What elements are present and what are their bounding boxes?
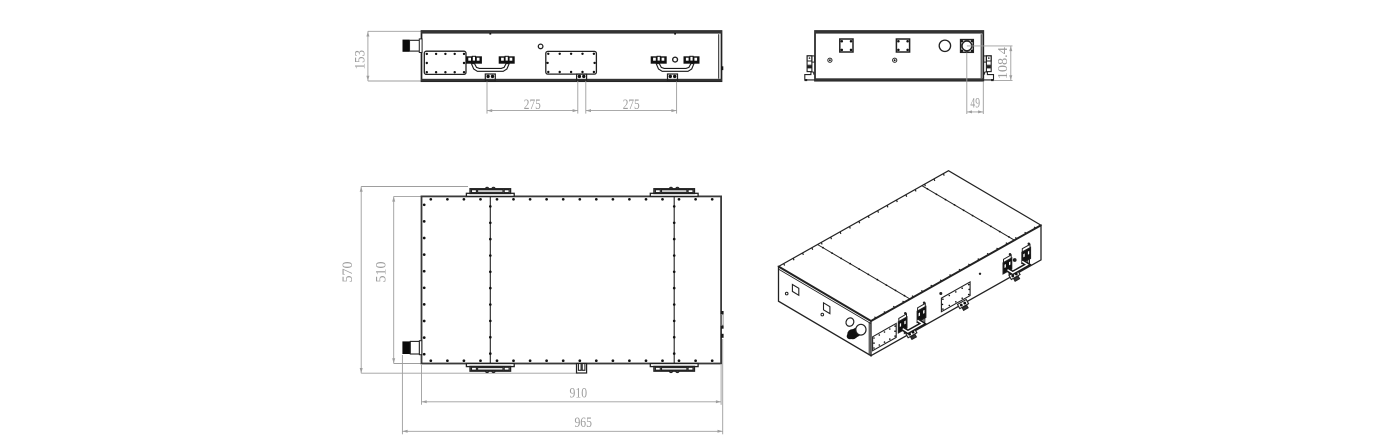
svg-text:108.4: 108.4 xyxy=(996,47,1011,79)
svg-text:510: 510 xyxy=(373,262,389,283)
svg-text:275: 275 xyxy=(623,97,640,113)
svg-text:275: 275 xyxy=(524,97,541,113)
svg-text:153: 153 xyxy=(353,50,369,70)
svg-text:910: 910 xyxy=(570,386,588,402)
svg-text:49: 49 xyxy=(970,95,980,111)
svg-text:965: 965 xyxy=(574,415,592,431)
svg-text:570: 570 xyxy=(340,262,356,283)
